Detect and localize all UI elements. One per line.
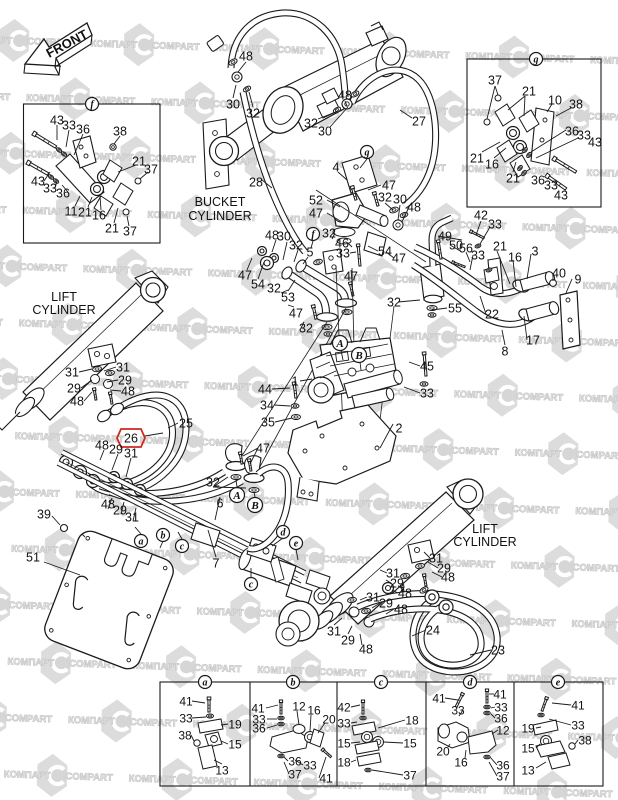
svg-text:41: 41 [493,687,507,701]
svg-text:48: 48 [338,89,352,103]
svg-text:КОМПАРТ: КОМПАРТ [503,786,550,799]
svg-text:b: b [161,531,166,542]
svg-text:48: 48 [359,643,373,657]
svg-text:КОМПАРТ: КОМПАРТ [15,431,62,444]
svg-text:COMPART: COMPART [565,788,613,800]
svg-text:29: 29 [341,634,355,648]
svg-text:31: 31 [366,591,380,605]
svg-text:КОМПАРТ: КОМПАРТ [575,506,618,519]
svg-text:COMPART: COMPART [0,203,7,216]
svg-text:38: 38 [569,98,583,112]
svg-text:COMPART: COMPART [576,450,618,463]
svg-text:COMPART: COMPART [516,391,564,404]
svg-text:42: 42 [474,209,488,223]
svg-text:43: 43 [588,136,602,150]
svg-text:39: 39 [37,508,51,522]
svg-text:КОМПАРТ: КОМПАРТ [197,606,244,619]
svg-text:КОМПАРТ: КОМПАРТ [511,560,558,573]
svg-text:17: 17 [526,334,540,348]
svg-text:44: 44 [258,383,272,397]
svg-text:48: 48 [95,439,109,453]
svg-text:48: 48 [70,395,84,409]
svg-text:48: 48 [398,587,412,601]
svg-text:51: 51 [26,551,40,565]
svg-text:30: 30 [226,98,240,112]
svg-text:36: 36 [531,174,545,188]
svg-text:COMPART: COMPART [319,667,367,680]
svg-text:g: g [364,148,370,159]
svg-text:48: 48 [394,603,408,617]
svg-text:COMPART: COMPART [587,111,618,124]
svg-text:КОМПАРТ: КОМПАРТ [382,669,429,682]
svg-text:КОМПАРТ: КОМПАРТ [579,393,618,406]
svg-text:CYLINDER: CYLINDER [453,535,516,549]
svg-text:КОМПАРТ: КОМПАРТ [0,34,13,47]
svg-text:c: c [249,580,254,591]
svg-text:КОМПАРТ: КОМПАРТ [22,205,69,218]
svg-text:7: 7 [213,557,220,571]
svg-text:37: 37 [496,769,510,783]
svg-text:19: 19 [228,717,242,731]
svg-text:20: 20 [322,712,336,726]
svg-text:42: 42 [337,700,351,714]
svg-text:48: 48 [441,571,455,585]
svg-text:19: 19 [521,721,535,735]
svg-text:COMPART: COMPART [277,45,325,58]
svg-text:COMPART: COMPART [323,554,371,567]
svg-text:54: 54 [251,278,265,292]
svg-text:38: 38 [178,728,192,742]
svg-text:COMPART: COMPART [205,324,253,337]
svg-text:B: B [354,350,362,362]
svg-text:31: 31 [65,366,79,380]
svg-text:26: 26 [124,432,138,446]
svg-text:КОМПАРТ: КОМПАРТ [0,260,5,273]
svg-text:КОМПАРТ: КОМПАРТ [26,93,73,106]
svg-text:21: 21 [470,152,484,166]
svg-text:45: 45 [420,360,434,374]
svg-text:32: 32 [387,296,401,310]
svg-text:g: g [533,55,539,66]
svg-text:КОМПАРТ: КОМПАРТ [325,498,372,511]
svg-text:BUCKET: BUCKET [195,195,246,209]
svg-text:33: 33 [451,703,465,717]
svg-text:КОМПАРТ: КОМПАРТ [454,389,501,402]
svg-text:33: 33 [179,711,193,725]
svg-text:2: 2 [396,422,403,436]
svg-text:КОМПАРТ: КОМПАРТ [143,322,190,335]
svg-text:c: c [180,542,185,553]
svg-text:16: 16 [485,158,499,172]
svg-text:КОМПАРТ: КОМПАРТ [204,381,251,394]
svg-text:31: 31 [116,361,130,375]
svg-text:37: 37 [488,74,502,88]
svg-text:34: 34 [260,399,274,413]
svg-text:COMPART: COMPART [273,157,321,170]
svg-text:20: 20 [436,744,450,758]
svg-text:e: e [294,539,299,550]
svg-text:18: 18 [337,755,351,769]
svg-text:COMPART: COMPART [402,49,450,62]
svg-text:33: 33 [488,218,502,232]
svg-text:32: 32 [267,282,281,296]
svg-text:32: 32 [304,117,318,131]
svg-text:21: 21 [493,240,507,254]
svg-text:21: 21 [78,206,92,220]
svg-text:23: 23 [491,644,505,658]
svg-text:КОМПАРТ: КОМПАРТ [465,51,512,64]
svg-text:КОМПАРТ: КОМПАРТ [83,264,130,277]
svg-text:36: 36 [288,754,302,768]
svg-text:A: A [232,490,240,502]
svg-text:CYLINDER: CYLINDER [32,303,95,317]
svg-text:22: 22 [485,308,499,322]
svg-text:21: 21 [506,172,520,186]
svg-text:52: 52 [309,194,323,208]
svg-text:37: 37 [123,225,137,239]
svg-text:COMPART: COMPART [12,487,60,500]
svg-text:31: 31 [327,625,341,639]
svg-text:COMPART: COMPART [5,713,53,726]
svg-text:29: 29 [109,443,123,457]
svg-text:15: 15 [403,736,417,750]
svg-text:8: 8 [502,345,509,359]
svg-text:15: 15 [228,737,242,751]
svg-text:9: 9 [575,273,582,287]
svg-text:КОМПАРТ: КОМПАРТ [257,665,304,678]
svg-text:43: 43 [554,189,568,203]
svg-text:33: 33 [571,718,585,732]
svg-text:25: 25 [179,417,193,431]
svg-text:c: c [379,678,384,689]
svg-text:COMPART: COMPART [508,617,556,630]
svg-text:48: 48 [121,385,135,399]
svg-text:12: 12 [292,699,306,713]
svg-text:33: 33 [337,716,351,730]
svg-text:47: 47 [309,207,323,221]
svg-text:e: e [556,678,561,689]
svg-text:COMPART: COMPART [451,445,499,458]
svg-text:КОМПАРТ: КОМПАРТ [583,280,618,293]
svg-text:35: 35 [261,416,275,430]
svg-text:33: 33 [420,387,434,401]
svg-text:16: 16 [508,251,522,265]
svg-text:55: 55 [448,302,462,316]
svg-text:47: 47 [392,252,406,266]
svg-text:29: 29 [379,597,393,611]
svg-text:32: 32 [378,191,392,205]
svg-text:37: 37 [288,767,302,781]
svg-text:КОМПАРТ: КОМПАРТ [0,147,9,160]
svg-text:41: 41 [432,691,446,705]
svg-text:COMPART: COMPART [152,40,200,53]
svg-text:CYLINDER: CYLINDER [188,209,251,223]
svg-text:КОМПАРТ: КОМПАРТ [590,55,618,68]
svg-text:27: 27 [412,115,426,129]
svg-text:COMPART: COMPART [130,717,178,730]
svg-text:COMPART: COMPART [141,379,189,392]
svg-text:48: 48 [239,50,253,64]
svg-text:КОМПАРТ: КОМПАРТ [19,318,66,331]
svg-text:КОМПАРТ: КОМПАРТ [68,715,115,728]
svg-text:a: a [139,537,144,548]
svg-text:3: 3 [532,245,539,259]
svg-text:B: B [250,500,258,512]
svg-text:11: 11 [65,205,78,219]
svg-text:COMPART: COMPART [448,558,496,571]
svg-text:КОМПАРТ: КОМПАРТ [4,769,51,782]
svg-text:COMPART: COMPART [569,675,617,688]
svg-text:10: 10 [548,94,562,108]
svg-text:COMPART: COMPART [8,600,56,613]
svg-text:15: 15 [337,736,351,750]
svg-text:КОМПАРТ: КОМПАРТ [586,168,618,181]
svg-text:33: 33 [43,182,57,196]
svg-text:21: 21 [105,222,119,236]
svg-text:54: 54 [378,245,392,259]
svg-text:29: 29 [67,382,81,396]
svg-text:COMPART: COMPART [398,161,446,174]
svg-text:32: 32 [246,107,260,121]
svg-text:COMPART: COMPART [194,663,242,676]
svg-text:47: 47 [289,307,303,321]
svg-text:A: A [335,338,343,350]
svg-text:COMPART: COMPART [65,771,113,784]
svg-text:b: b [291,678,296,689]
svg-text:16: 16 [92,209,106,223]
svg-text:37: 37 [144,163,158,177]
svg-text:36: 36 [56,187,70,201]
svg-text:LIFT: LIFT [472,522,498,536]
svg-text:COMPART: COMPART [20,262,68,275]
svg-text:КОМПАРТ: КОМПАРТ [393,331,440,344]
svg-text:КОМПАРТ: КОМПАРТ [90,38,137,51]
svg-text:COMPART: COMPART [455,333,503,346]
svg-text:41: 41 [571,698,585,712]
svg-text:COMPART: COMPART [0,91,11,104]
svg-text:32: 32 [289,239,303,253]
svg-text:30: 30 [393,193,407,207]
svg-text:КОМПАРТ: КОМПАРТ [128,773,175,786]
svg-text:COMPART: COMPART [572,562,618,575]
svg-text:COMPART: COMPART [580,337,618,350]
svg-text:33: 33 [303,758,317,772]
svg-text:28: 28 [249,176,263,190]
svg-text:КОМПАРТ: КОМПАРТ [378,782,425,795]
svg-text:38: 38 [578,733,592,747]
svg-text:12: 12 [496,723,510,737]
svg-text:COMPART: COMPART [512,504,560,517]
svg-text:16: 16 [307,703,321,717]
svg-text:COMPART: COMPART [584,224,618,237]
svg-text:33: 33 [336,247,350,261]
svg-text:a: a [203,678,208,689]
svg-text:LIFT: LIFT [51,290,77,304]
svg-text:36: 36 [252,721,266,735]
svg-text:16: 16 [454,755,468,769]
svg-text:18: 18 [405,713,419,727]
svg-text:47: 47 [238,269,252,283]
svg-text:37: 37 [403,768,417,782]
svg-text:32: 32 [322,227,336,241]
svg-text:КОМПАРТ: КОМПАРТ [571,619,618,632]
svg-text:31: 31 [125,511,139,525]
svg-text:КОМПАРТ: КОМПАРТ [7,656,54,669]
svg-text:13: 13 [521,763,535,777]
svg-text:40: 40 [552,267,566,281]
svg-text:КОМПАРТ: КОМПАРТ [151,97,198,110]
svg-text:41: 41 [179,694,193,708]
svg-text:53: 53 [281,291,295,305]
svg-text:15: 15 [521,741,535,755]
svg-text:13: 13 [215,763,229,777]
svg-text:КОМПАРТ: КОМПАРТ [515,447,562,460]
svg-text:1: 1 [292,375,299,389]
svg-text:КОМПАРТ: КОМПАРТ [522,222,569,235]
svg-text:24: 24 [426,624,440,638]
svg-text:КОМПАРТ: КОМПАРТ [390,443,437,456]
svg-text:41: 41 [319,771,333,785]
